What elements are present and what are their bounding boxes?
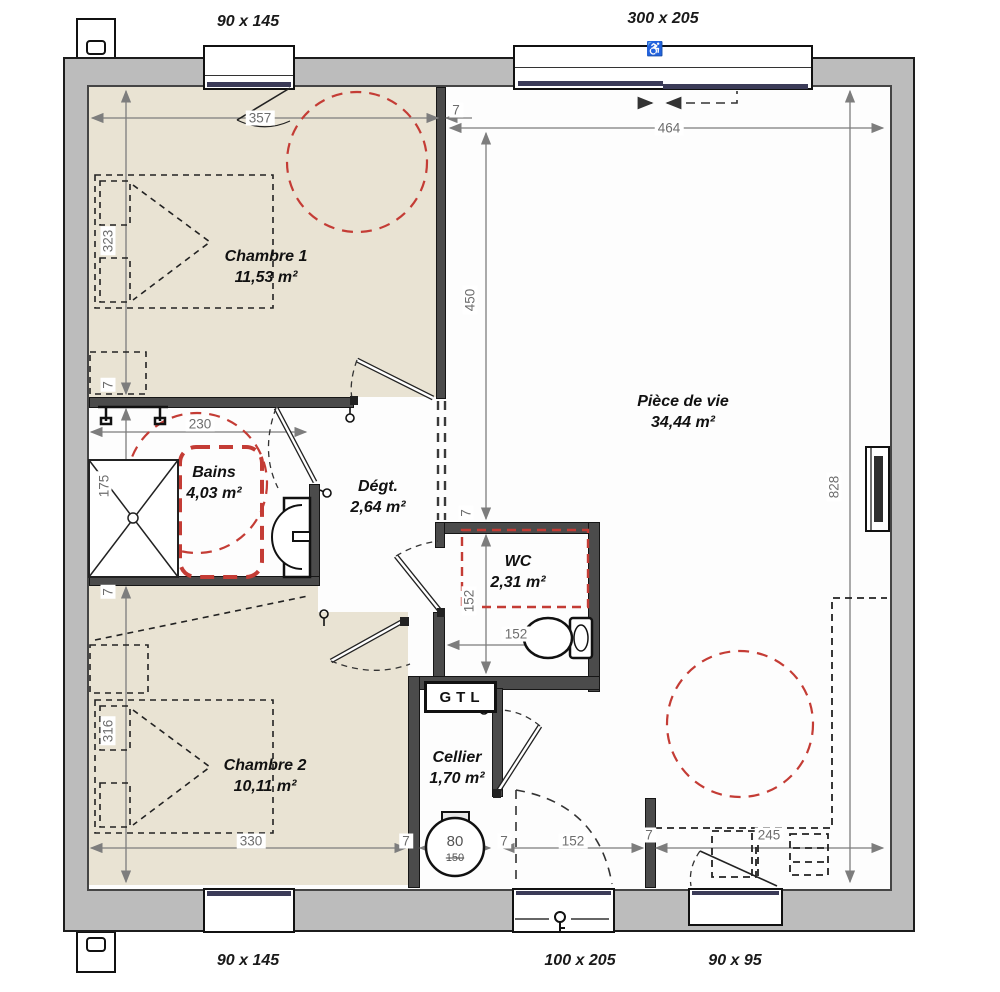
dim-152-wc-h: 152 xyxy=(502,627,531,642)
opening-label-top-right: 300 x 205 xyxy=(627,10,698,28)
room-name: Chambre 2 xyxy=(224,755,307,776)
water-heater-capacity: 150 xyxy=(446,852,464,864)
toilet-icon xyxy=(524,618,592,658)
dim-7: 7 xyxy=(449,103,463,118)
towel-radiator-icon xyxy=(98,407,168,424)
room-label-degt: Dégt. 2,64 m² xyxy=(350,476,405,518)
opening-label-bottom-left: 90 x 145 xyxy=(217,952,279,970)
gtl-box: GTL xyxy=(424,681,497,713)
room-name: Dégt. xyxy=(350,476,405,497)
room-label-chambre1: Chambre 1 11,53 m² xyxy=(225,246,308,288)
room-label-bains: Bains 4,03 m² xyxy=(186,462,241,504)
dim-7: 7 xyxy=(399,834,413,849)
sliding-door-indicator xyxy=(638,91,737,103)
room-area: 2,64 m² xyxy=(350,497,405,518)
room-area: 10,11 m² xyxy=(224,776,307,797)
room-name: Pièce de vie xyxy=(637,391,729,412)
window-casement-bottom-right xyxy=(690,851,777,886)
room-label-wc: WC 2,31 m² xyxy=(490,551,545,593)
dim-828: 828 xyxy=(827,473,842,502)
room-name: WC xyxy=(490,551,545,572)
bed-chambre2-icon xyxy=(90,596,308,833)
door-wc xyxy=(396,541,445,617)
dim-316: 316 xyxy=(101,717,116,746)
dim-357: 357 xyxy=(246,111,275,126)
door-cellier xyxy=(480,698,540,798)
dim-450: 450 xyxy=(463,286,478,315)
opening-label-top-left: 90 x 145 xyxy=(217,13,279,31)
dim-7: 7 xyxy=(642,828,656,843)
door-entry-swing xyxy=(515,790,612,919)
room-area: 11,53 m² xyxy=(225,267,308,288)
key-icon xyxy=(555,912,565,931)
room-area: 4,03 m² xyxy=(186,483,241,504)
room-label-piece-de-vie: Pièce de vie 34,44 m² xyxy=(637,391,729,433)
dim-7: 7 xyxy=(459,506,474,520)
door-chambre1 xyxy=(346,360,433,422)
door-chambre2 xyxy=(320,610,410,670)
opening-label-bottom-right: 90 x 95 xyxy=(708,952,761,970)
dim-175: 175 xyxy=(97,472,112,501)
dim-7: 7 xyxy=(101,585,116,599)
water-heater-diameter: 80 xyxy=(447,833,464,850)
door-bains xyxy=(268,408,331,497)
opening-label-entry-door: 100 x 205 xyxy=(544,952,615,970)
dim-152-entry: 152 xyxy=(559,834,588,849)
dim-7: 7 xyxy=(497,834,511,849)
room-name: Chambre 1 xyxy=(225,246,308,267)
room-area: 1,70 m² xyxy=(429,768,484,789)
dim-7: 7 xyxy=(101,378,116,392)
dim-330: 330 xyxy=(237,834,266,849)
open-passage-dashes xyxy=(438,401,445,520)
floor-plan: ♿ xyxy=(0,0,1000,992)
room-name: Cellier xyxy=(429,747,484,768)
washbasin-icon xyxy=(272,498,310,577)
dim-230: 230 xyxy=(186,417,215,432)
dim-152-wc-v: 152 xyxy=(462,587,477,616)
dim-245: 245 xyxy=(755,828,784,843)
room-area: 2,31 m² xyxy=(490,572,545,593)
room-label-chambre2: Chambre 2 10,11 m² xyxy=(224,755,307,797)
room-label-cellier: Cellier 1,70 m² xyxy=(429,747,484,789)
wall-unit-icon xyxy=(866,447,889,531)
dim-323: 323 xyxy=(101,227,116,256)
dim-464: 464 xyxy=(655,121,684,136)
room-area: 34,44 m² xyxy=(637,412,729,433)
room-name: Bains xyxy=(186,462,241,483)
